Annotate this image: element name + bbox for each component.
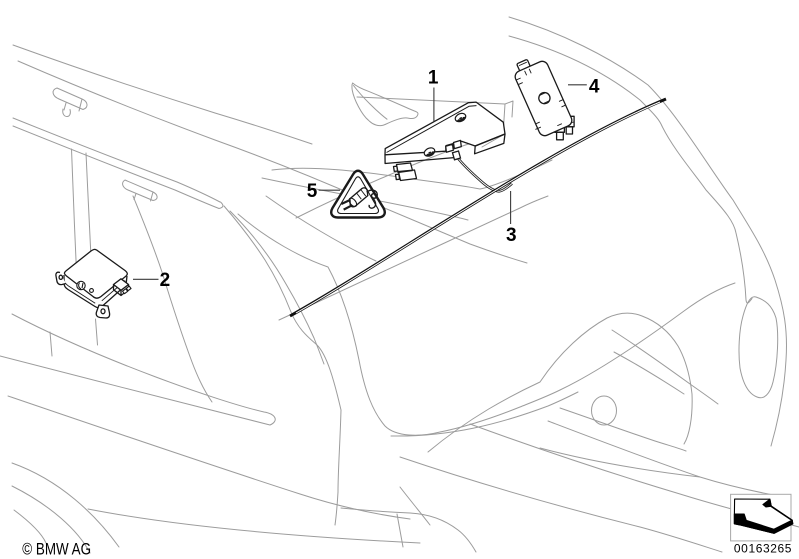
svg-text:2: 2: [160, 270, 171, 291]
svg-text:3: 3: [506, 225, 517, 246]
svg-text:© BMW AG: © BMW AG: [22, 540, 91, 559]
svg-text:1: 1: [428, 68, 439, 89]
svg-text:00163265: 00163265: [734, 542, 792, 556]
svg-text:4: 4: [589, 76, 600, 97]
svg-text:5: 5: [307, 181, 318, 202]
